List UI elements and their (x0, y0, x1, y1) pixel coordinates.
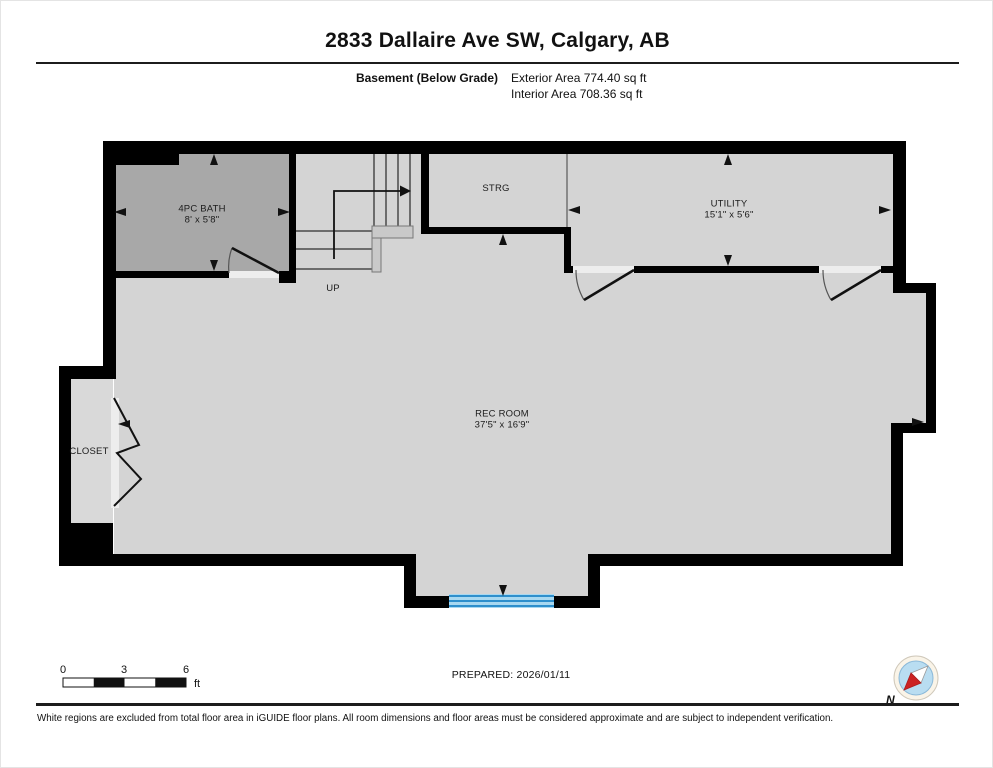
wall-utility-bottom (634, 266, 819, 273)
bay-window (449, 594, 554, 608)
room-dims: 15'1" x 5'6" (704, 210, 753, 221)
wall-bump-right (926, 283, 936, 433)
footer-divider (36, 703, 959, 706)
room-name: CLOSET (69, 447, 108, 458)
wall-bath-right (289, 154, 296, 278)
room-dims: 37'5" x 16'9" (475, 420, 530, 431)
room-label-bath: 4PC BATH 8' x 5'8" (178, 205, 225, 226)
room-name: UTILITY (704, 200, 753, 211)
room-name: UP (326, 284, 340, 295)
room-label-closet: CLOSET (69, 447, 108, 458)
wall-stair-right (421, 141, 429, 234)
wall-right-lower (891, 423, 903, 566)
wall-utility-bottom-right (881, 266, 906, 273)
wall-stub-a (564, 266, 574, 273)
floor-plan-drawing (1, 1, 993, 768)
wall-bottom-left (59, 554, 404, 566)
room-label-utility: UTILITY 15'1" x 5'6" (704, 200, 753, 221)
room-label-rec-room: REC ROOM 37'5" x 16'9" (475, 410, 530, 431)
room-name: STRG (482, 184, 509, 195)
stairs-up-label: UP (326, 284, 340, 295)
prepared-date: PREPARED: 2026/01/11 (1, 669, 993, 681)
wall-strg-bottom (421, 227, 564, 234)
disclaimer-text: White regions are excluded from total fl… (37, 713, 967, 724)
wall-bay-bottom-left (404, 596, 449, 608)
floor-plan-page: 2833 Dallaire Ave SW, Calgary, AB Baseme… (0, 0, 993, 768)
wall-bay-right (588, 554, 600, 608)
room-dims: 8' x 5'8" (178, 215, 225, 226)
wall-left (103, 141, 116, 379)
room-label-strg: STRG (482, 184, 509, 195)
room-name: REC ROOM (475, 410, 530, 421)
room-name: 4PC BATH (178, 205, 225, 216)
wall-bottom-right (600, 554, 903, 566)
wall-top (103, 141, 906, 154)
wall-bath-bottom (103, 271, 229, 278)
wall-bath-stub (279, 271, 296, 283)
